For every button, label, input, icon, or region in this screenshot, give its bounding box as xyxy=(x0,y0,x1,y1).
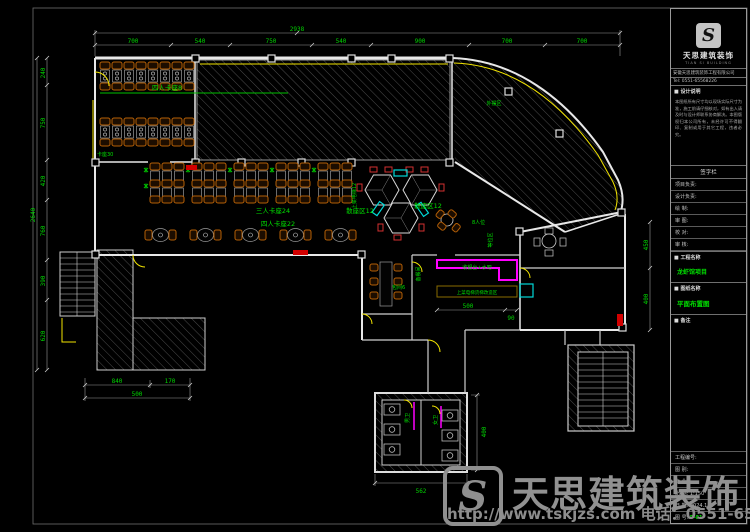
section-project: ■ 工程名称 xyxy=(671,251,746,263)
drawing-name: 平面布置图 xyxy=(671,294,746,314)
title-block: S 天思建筑装饰 TIAN SI BUILDING 安徽天思建筑装饰工程有限公司… xyxy=(670,8,747,524)
label-wc-m: 男卫 xyxy=(405,413,411,423)
label-wc-f: 女卫 xyxy=(432,415,439,425)
booth-groups xyxy=(144,163,352,203)
info-row: 工程编号: xyxy=(671,451,746,464)
stairs-left xyxy=(60,252,95,316)
company-name: 安徽天思建筑装饰工程有限公司 xyxy=(671,68,746,77)
label-zone4: 四人卡座22 xyxy=(261,219,295,228)
seating-bank-mid xyxy=(100,118,194,146)
section-remark: ■ 备注 xyxy=(671,314,746,326)
sign-row: 审 图: xyxy=(671,215,746,227)
dim-left-5: 390 xyxy=(40,275,47,286)
info-row: 专 业: xyxy=(671,476,746,488)
drawing-number-value: P-01 xyxy=(690,515,703,521)
dim-left-6: 620 xyxy=(40,330,47,341)
label-pantry: 备餐间 xyxy=(415,266,422,281)
stairs-right xyxy=(578,352,628,426)
label-waiting: 等位区 xyxy=(487,232,494,247)
drawing-number-row: 图 号: P-01 xyxy=(671,512,746,523)
label-room6: 包间6 xyxy=(392,284,405,291)
sign-row: 项目负责: xyxy=(671,179,746,191)
dim-left-1: 240 xyxy=(40,67,47,78)
section-drawing: ■ 图纸名称 xyxy=(671,282,746,294)
dim-bl-1: 840 xyxy=(112,378,123,385)
dim-right-2: 400 xyxy=(643,293,650,304)
label-lift: 上菜电梯12 xyxy=(351,183,358,209)
dim-bl-total: 500 xyxy=(132,391,143,398)
dim-top-7: 700 xyxy=(577,38,588,45)
dim-top-1: 700 xyxy=(128,38,139,45)
dim-cashier-1: 500 xyxy=(463,303,474,310)
dim-top-3: 750 xyxy=(266,38,277,45)
design-notes: 本图纸所有尺寸均以现场实际尺寸为准，施工前请仔细核对，如有出入请及时与设计师联系… xyxy=(671,97,746,165)
info-row: 图 别: xyxy=(671,464,746,476)
drawing-number-label: 图 号: xyxy=(675,515,688,521)
dim-toilet-right: 400 xyxy=(481,426,488,437)
sign-row: 绘 制: xyxy=(671,203,746,215)
dim-top-6: 700 xyxy=(502,38,513,45)
dim-left-4: 760 xyxy=(40,225,47,236)
label-cashier: 收银台+水吧 xyxy=(462,264,491,271)
dim-top-2: 540 xyxy=(195,38,206,45)
sign-row: 校 对: xyxy=(671,227,746,239)
floor-plan-canvas: 700 540 750 540 900 700 700 2938 240 750… xyxy=(0,0,750,532)
dim-cashier-2: 90 xyxy=(507,315,515,322)
project-name: 龙虾馆项目 xyxy=(671,263,746,282)
dimension-top: 700 540 750 540 900 700 700 2938 xyxy=(93,26,622,56)
label-hex1: 散座区12 xyxy=(346,206,374,215)
label-hex2: 散座区12 xyxy=(414,201,442,210)
dim-left-2: 750 xyxy=(40,117,47,128)
label-outdoor: 外摆区 xyxy=(486,100,501,107)
private-room-table xyxy=(370,262,402,306)
company-logo-icon: S xyxy=(696,23,721,48)
dim-toilet-bottom: 562 xyxy=(416,488,427,495)
round-table-right-room xyxy=(534,228,566,256)
label-zone3: 三人卡座24 xyxy=(256,206,290,215)
company-tel: Tel: 0551-65568226 xyxy=(671,77,746,85)
label-zone2: 卡座30 xyxy=(97,151,113,158)
dim-top-5: 900 xyxy=(415,38,426,45)
section-notes: ■ 设计说明 xyxy=(671,85,746,97)
label-lift2: 上菜电梯货梯改造区 xyxy=(457,289,498,296)
sign-row: 审 核: xyxy=(671,239,746,251)
dim-top-4: 540 xyxy=(336,38,347,45)
company-brand: 天思建筑装饰 xyxy=(671,50,746,61)
sign-header: 签字栏 xyxy=(671,165,746,179)
sign-row: 设计负责: xyxy=(671,191,746,203)
dim-top-total: 2938 xyxy=(290,26,305,33)
label-zone1: 四人卡座8 xyxy=(152,83,182,92)
dim-right-1: 450 xyxy=(643,239,650,250)
dim-left-total: 2640 xyxy=(30,207,37,222)
dim-left-3: 420 xyxy=(40,175,47,186)
company-brand-sub: TIAN SI BUILDING xyxy=(671,61,746,65)
oval-tables xyxy=(145,229,356,242)
date-row: 日 期: 2024.11 xyxy=(671,500,746,512)
scale-row: 比 例: 1:150 xyxy=(671,488,746,500)
label-seat8: 8人位 xyxy=(472,219,485,226)
cad-sheet: 700 540 750 540 900 700 700 2938 240 750… xyxy=(0,0,750,532)
dimension-bottom-left: 840 170 500 xyxy=(83,378,192,401)
dim-bl-2: 170 xyxy=(165,378,176,385)
